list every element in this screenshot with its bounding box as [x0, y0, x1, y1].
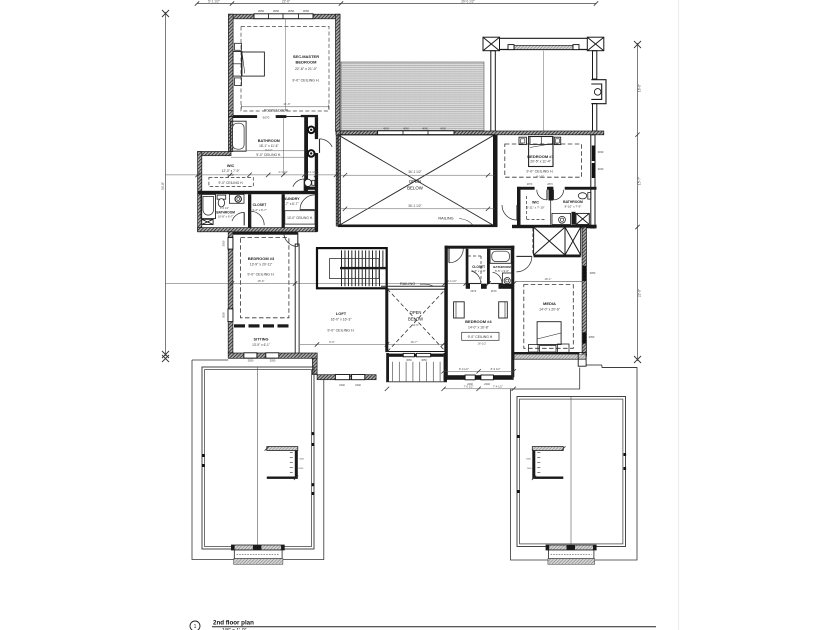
svg-text:OPEN: OPEN	[409, 179, 421, 184]
svg-text:3030: 3030	[598, 167, 604, 171]
svg-text:8'-9 1/2": 8'-9 1/2"	[491, 367, 501, 371]
svg-text:9'-0" CEILING H.: 9'-0" CEILING H.	[327, 329, 354, 333]
svg-text:RAILING: RAILING	[400, 282, 415, 286]
svg-text:WIC: WIC	[532, 201, 539, 205]
svg-text:21'-6": 21'-6"	[283, 102, 290, 106]
svg-text:2nd floor plan: 2nd floor plan	[213, 620, 254, 627]
svg-text:3050: 3050	[273, 9, 280, 13]
svg-text:4'-2" x 6'-7": 4'-2" x 6'-7"	[252, 208, 267, 212]
svg-text:14'-0" x 16'-8": 14'-0" x 16'-8"	[468, 325, 490, 329]
svg-text:2640: 2640	[527, 468, 533, 470]
svg-text:4'-1 1/2": 4'-1 1/2"	[307, 170, 317, 174]
svg-text:4'-4 1/2": 4'-4 1/2"	[447, 279, 457, 283]
svg-text:4040: 4040	[422, 126, 428, 130]
svg-text:4040: 4040	[403, 126, 409, 130]
svg-text:16'-1/2": 16'-1/2"	[477, 342, 486, 346]
svg-text:6070: 6070	[263, 115, 270, 119]
svg-text:3050: 3050	[222, 240, 226, 246]
svg-text:13'-9" x 6'-1": 13'-9" x 6'-1"	[252, 343, 270, 347]
svg-text:BELOW: BELOW	[408, 317, 423, 322]
svg-text:3050: 3050	[303, 9, 310, 13]
svg-text:MEDIA: MEDIA	[543, 301, 556, 306]
svg-text:7'-0 1/2": 7'-0 1/2"	[464, 385, 474, 389]
svg-text:9'-0" CEILING H.: 9'-0" CEILING H.	[256, 153, 281, 157]
svg-text:2870: 2870	[547, 183, 553, 186]
svg-text:BEDROOM: BEDROOM	[296, 60, 318, 65]
svg-text:4'-1/2": 4'-1/2"	[536, 175, 544, 179]
svg-text:3'-6 1/2": 3'-6 1/2"	[220, 207, 229, 210]
svg-text:3030: 3030	[598, 150, 604, 154]
svg-text:9'-0" CEILING H.: 9'-0" CEILING H.	[526, 170, 553, 174]
svg-text:10'-8" x 6'-7": 10'-8" x 6'-7"	[218, 214, 234, 218]
svg-text:BEDROOM #1: BEDROOM #1	[527, 154, 554, 159]
svg-text:8'-10" x 7'-9": 8'-10" x 7'-9"	[565, 205, 582, 209]
svg-text:1: 1	[194, 624, 197, 630]
svg-text:2640: 2640	[298, 468, 304, 470]
svg-text:8'-0 1/2": 8'-0 1/2"	[459, 367, 469, 371]
svg-text:16'-7": 16'-7"	[410, 340, 417, 344]
svg-text:SEC.MASTER: SEC.MASTER	[293, 54, 319, 59]
svg-text:3050: 3050	[406, 359, 412, 362]
svg-text:16'-0" x 16'-3": 16'-0" x 16'-3"	[331, 318, 353, 322]
svg-text:4040: 4040	[383, 126, 389, 130]
svg-text:16'-6": 16'-6"	[638, 84, 642, 92]
svg-text:3050: 3050	[248, 359, 254, 363]
svg-text:22'-8": 22'-8"	[638, 289, 642, 297]
svg-text:3050: 3050	[590, 271, 596, 275]
svg-text:BEDROOM #4: BEDROOM #4	[465, 319, 492, 324]
svg-text:15'-6": 15'-6"	[257, 279, 264, 283]
svg-text:BATHROOM: BATHROOM	[563, 200, 583, 204]
svg-text:10'-0" CEILING H.: 10'-0" CEILING H.	[287, 216, 313, 220]
svg-text:4'-6" x 4'-9": 4'-6" x 4'-9"	[472, 269, 486, 273]
svg-text:22'-6" x 21'-0": 22'-6" x 21'-0"	[295, 67, 318, 71]
svg-text:3050: 3050	[258, 9, 265, 13]
svg-text:3080: 3080	[526, 459, 532, 461]
svg-text:9'-0" CEILING H.: 9'-0" CEILING H.	[468, 335, 494, 339]
svg-text:9'-0" CEILING H.: 9'-0" CEILING H.	[247, 273, 274, 277]
svg-text:2440: 2440	[355, 383, 361, 387]
svg-text:9'-0" CEILING H.: 9'-0" CEILING H.	[219, 181, 244, 185]
svg-text:18'-1" x 11'-6": 18'-1" x 11'-6"	[259, 144, 278, 148]
svg-text:LOFT: LOFT	[336, 311, 347, 316]
svg-text:5'-1 1/2": 5'-1 1/2"	[208, 0, 220, 4]
svg-text:16'-1": 16'-1"	[544, 277, 551, 281]
svg-text:2470: 2470	[470, 289, 476, 293]
svg-text:3050: 3050	[270, 359, 276, 363]
svg-text:BELOW: BELOW	[407, 186, 424, 191]
svg-text:SITTING: SITTING	[254, 338, 269, 342]
svg-text:14'-0" x 20'-6": 14'-0" x 20'-6"	[539, 308, 561, 312]
svg-text:9'-0" CEILING H.: 9'-0" CEILING H.	[292, 79, 319, 83]
svg-text:OPEN: OPEN	[410, 310, 422, 315]
svg-text:9'-6": 9'-6"	[329, 340, 335, 344]
svg-text:9'-1/2": 9'-1/2"	[265, 148, 272, 152]
svg-text:2670: 2670	[491, 289, 497, 293]
svg-text:7'-4 1/2": 7'-4 1/2"	[493, 385, 503, 389]
svg-text:8'-7" x 6'-7": 8'-7" x 6'-7"	[282, 202, 298, 206]
svg-text:3050: 3050	[288, 9, 295, 13]
svg-text:3050: 3050	[421, 359, 427, 362]
svg-text:13'-9" x 20'-11": 13'-9" x 20'-11"	[250, 263, 273, 267]
svg-text:20'-5" x 11'-4": 20'-5" x 11'-4"	[530, 159, 551, 163]
svg-text:BEDROOM #3: BEDROOM #3	[248, 256, 275, 261]
svg-text:BATHROOM: BATHROOM	[258, 139, 280, 143]
svg-text:3050: 3050	[589, 335, 595, 339]
svg-text:34'-8": 34'-8"	[161, 182, 165, 190]
svg-text:2440: 2440	[339, 383, 345, 387]
svg-text:CLOSET: CLOSET	[253, 203, 268, 207]
svg-text:POCKET DOOR: POCKET DOOR	[264, 108, 289, 112]
svg-text:22'-6": 22'-6"	[282, 0, 290, 4]
svg-text:3'-11" x 7'-10": 3'-11" x 7'-10"	[526, 206, 544, 210]
svg-text:WIC: WIC	[227, 164, 235, 168]
svg-text:5'-5" x 9'-0": 5'-5" x 9'-0"	[495, 269, 509, 273]
svg-text:LAUNDRY: LAUNDRY	[281, 197, 300, 201]
svg-text:3080: 3080	[299, 459, 305, 461]
svg-text:36'-1 1/2": 36'-1 1/2"	[408, 170, 421, 174]
svg-text:4040: 4040	[440, 126, 446, 130]
svg-text:16'-5": 16'-5"	[412, 323, 419, 327]
svg-text:29'-0 1/2": 29'-0 1/2"	[461, 0, 474, 4]
svg-text:2870: 2870	[527, 183, 533, 186]
svg-text:12'-0" x 7'-9": 12'-0" x 7'-9"	[222, 169, 240, 173]
svg-text:15'-7": 15'-7"	[638, 177, 642, 185]
svg-text:2440: 2440	[484, 382, 490, 386]
svg-text:3050: 3050	[222, 312, 226, 318]
svg-text:36'-1 1/2": 36'-1 1/2"	[408, 204, 421, 208]
svg-text:RAILING: RAILING	[438, 217, 453, 221]
